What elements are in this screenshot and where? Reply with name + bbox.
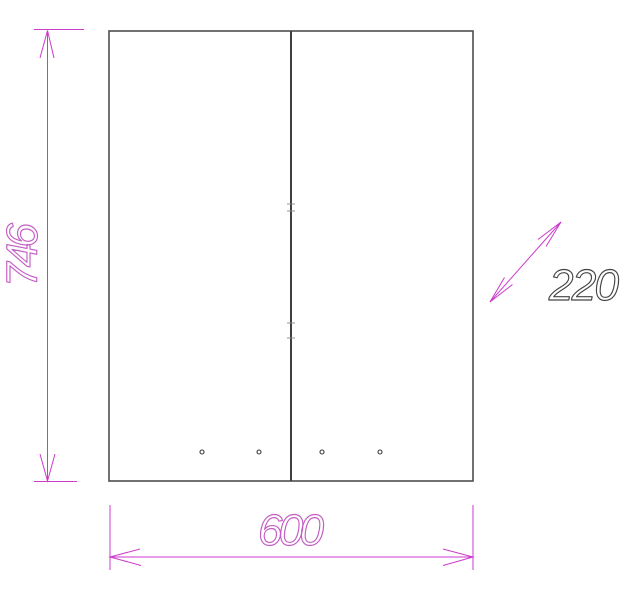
width-dimension-label: 600 — [258, 506, 325, 555]
depth-dimension-label: 220 — [548, 261, 620, 310]
handle-hole — [378, 450, 382, 454]
cabinet-group — [109, 31, 473, 481]
depth-dimension: 220 — [490, 222, 620, 310]
handle-hole — [320, 450, 324, 454]
height-dimension-label: 746 — [0, 222, 47, 287]
technical-drawing: 746 600 220 — [0, 0, 633, 600]
handle-hole — [257, 450, 261, 454]
cabinet-dimension-drawing: 746 600 220 — [0, 0, 633, 600]
width-dimension: 600 — [110, 505, 473, 570]
handle-hole — [200, 450, 204, 454]
height-dimension: 746 — [0, 30, 84, 482]
